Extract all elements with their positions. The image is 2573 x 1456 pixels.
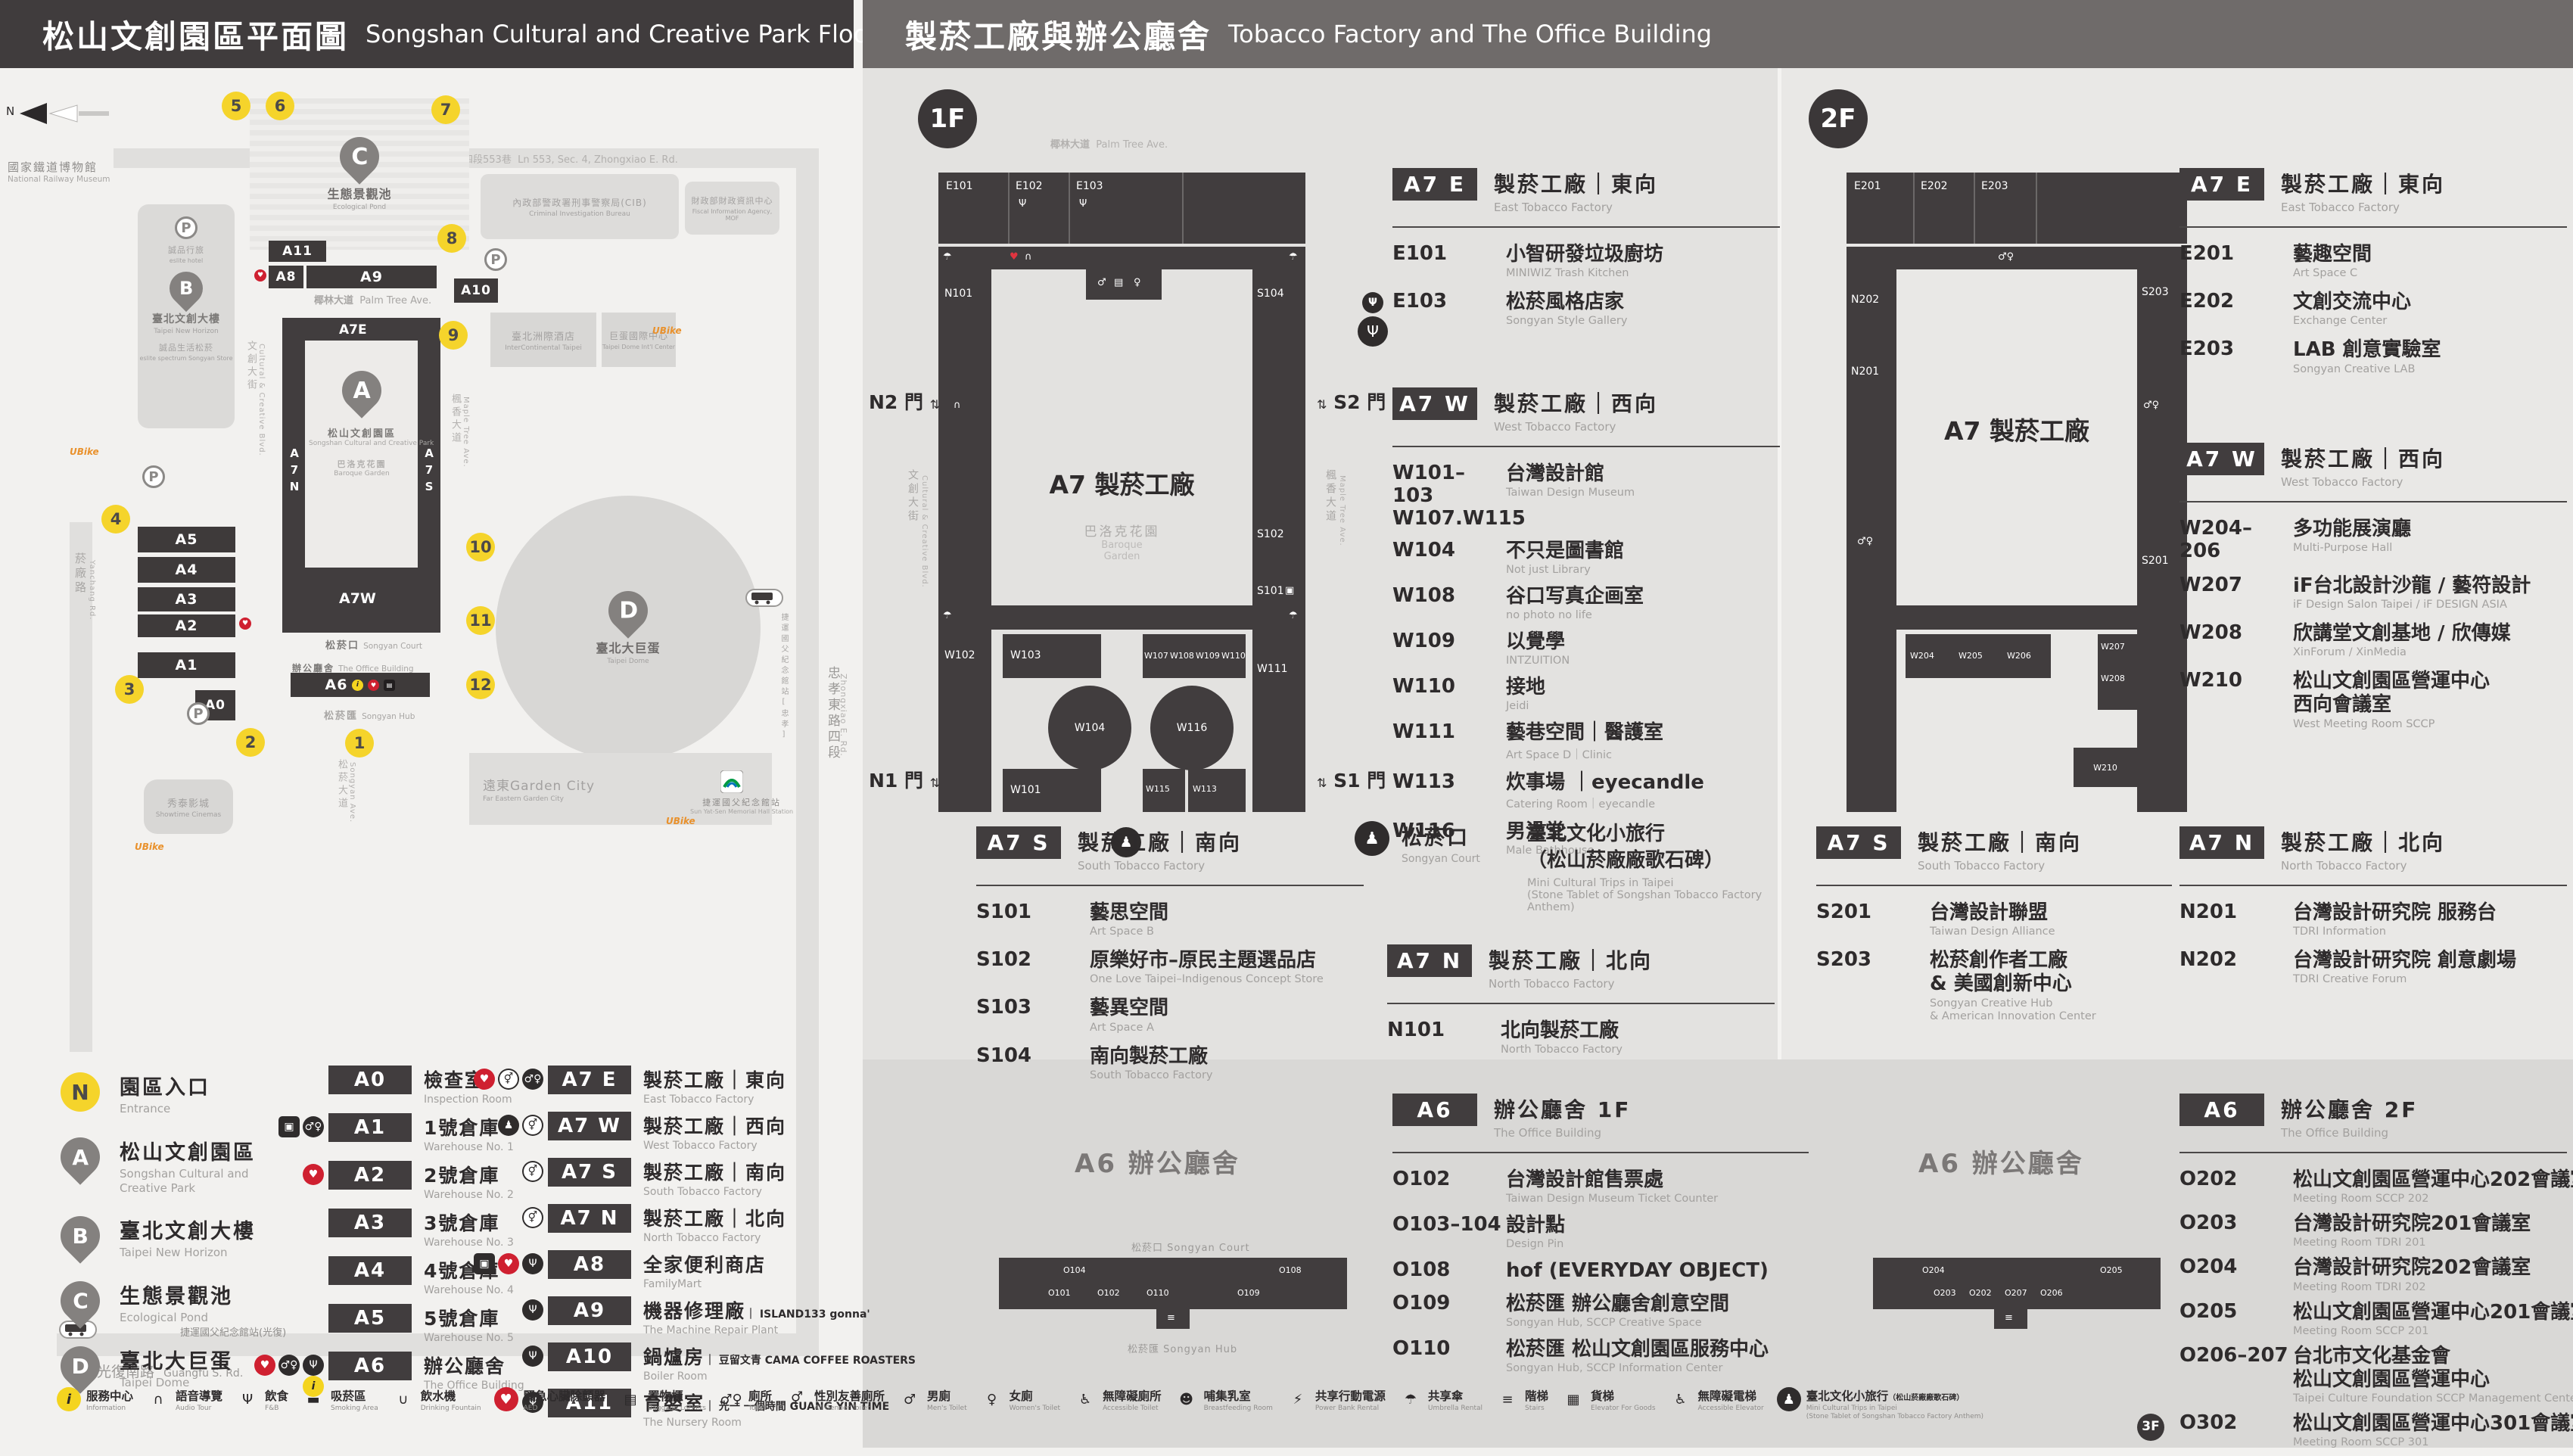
- section-a7n-1f: A7 N 製菸工廠｜北向 North Tobacco Factory N101 …: [1387, 944, 1775, 1067]
- room-list-item: W204–206 多功能展演廳Multi-Purpose Hall: [2179, 518, 2567, 563]
- section-title: 製菸工廠｜西向: [2281, 443, 2445, 473]
- room-list-item: E101 小智研發垃圾廚坊MINIWIZ Trash Kitchen: [1392, 243, 1780, 279]
- room-w110: W110: [1221, 651, 1246, 661]
- floor2-plan: E201 E202 E203 ♂♀ N202 N201 ♂♀ S203 S201…: [1847, 173, 2187, 812]
- stairs-icon: ≡: [2005, 1312, 2013, 1324]
- aed-icon: ♥: [498, 1253, 519, 1274]
- facility-legend-item: ∪ 飲水機 Drinking Fountain: [391, 1387, 481, 1413]
- fnb-icon: Ψ: [522, 1299, 543, 1321]
- building-legend-item: ♥⚥♂♀ A7 E 製菸工廠｜東向 East Tobacco Factory: [454, 1066, 848, 1106]
- room-o204: O204: [1922, 1265, 1945, 1275]
- room-list-item: W210 松山文創園區營運中心西向會議室West Meeting Room SC…: [2179, 670, 2567, 730]
- aed-icon: ♥: [303, 1164, 324, 1185]
- ubike-logo: UBike: [666, 816, 695, 826]
- a6-plan-title: A6 辦公廳舍: [1918, 1143, 2084, 1180]
- section-a7w-1f: A7 W 製菸工廠｜西向 West Tobacco Factory W101–1…: [1392, 387, 1780, 866]
- facility-legend-item: ♿ 無障礙廁所 Accessible Toilet: [1073, 1387, 1162, 1413]
- plan1-maple-label: 楓香大道: [1323, 469, 1338, 524]
- umbrella-rental-icon: ☂: [1289, 610, 1298, 621]
- room-list-item: O110 松菸匯 松山文創園區服務中心Songyan Hub, SCCP Inf…: [1392, 1338, 1809, 1374]
- smoking-area-icon: ▬: [301, 1387, 325, 1411]
- maple-ave-label: 楓香大道: [448, 394, 462, 445]
- road-left-label: 菸廠路: [73, 552, 89, 596]
- room-list-item: O102 台灣設計館售票處Taiwan Design Museum Ticket…: [1392, 1168, 1809, 1205]
- court-item-en: Mini Cultural Trips in Taipei: [1527, 877, 1778, 889]
- building-a4: A4: [138, 557, 235, 583]
- room-o202: O202: [1969, 1288, 1992, 1298]
- room-s102: S102: [1257, 528, 1284, 540]
- divider: [2179, 226, 2567, 228]
- room-list-item: S201 台灣設計聯盟Taiwan Design Alliance: [1816, 901, 2172, 938]
- room-e202: E202: [1921, 180, 1948, 192]
- section-title: 辦公廳舍 2F: [2281, 1094, 2418, 1124]
- umbrella-rental-icon: ☂: [1289, 251, 1298, 263]
- information-icon: i: [57, 1387, 81, 1411]
- room-o108: O108: [1279, 1265, 1302, 1275]
- entrance-12: 12: [466, 670, 495, 699]
- mini-trips-icon: ♟: [498, 1115, 519, 1136]
- room-list-item: ΨE103 松菸風格店家Songyan Style Gallery: [1392, 291, 1780, 327]
- section-a7e-2f: A7 E 製菸工廠｜東向 East Tobacco Factory E201 藝…: [2179, 168, 2567, 387]
- section-title: 辦公廳舍 1F: [1494, 1094, 1631, 1124]
- songyan-court-label: 松菸口 Songyan Court: [325, 637, 422, 652]
- floor1-plan: E101 E102 Ψ E103 Ψ ☂ ☂ ♥ ∩ ♂ ▤ ♀ N101 W1…: [938, 173, 1305, 812]
- room-w102: W102: [944, 649, 975, 661]
- room-list-item: O103–104 設計點Design Pin: [1392, 1214, 1809, 1250]
- section-page-title-en: Tobacco Factory and The Office Building: [1228, 20, 1712, 48]
- aed-icon: ♥: [254, 1355, 275, 1376]
- room-list-item: W109 以覺學INTZUITION: [1392, 630, 1780, 667]
- section-title: 製菸工廠｜西向: [1494, 387, 1658, 418]
- entrance-8: 8: [437, 224, 466, 253]
- badge-a7s: A7 S: [976, 826, 1061, 859]
- mini-trips-icon: ♟: [1777, 1387, 1801, 1411]
- factory-a7s-label: A7S: [422, 446, 436, 496]
- facility-legend-item: ⚥ 性別友善廁所 All Gender Toilet: [785, 1387, 885, 1413]
- pin-c: C: [331, 129, 387, 185]
- umbrella-rental-icon: ☂: [943, 251, 952, 263]
- room-list-item: W113 炊事場 ｜eyecandleCatering Room｜eyecand…: [1392, 771, 1780, 811]
- plan1-maple-label-en: Maple Tree Ave.: [1338, 475, 1346, 546]
- all-gender-toilet-icon: ⚥: [522, 1161, 543, 1182]
- parking-icon: P: [187, 702, 210, 725]
- section-a7w-2f: A7 W 製菸工廠｜西向 West Tobacco Factory W204–2…: [2179, 443, 2567, 742]
- audio-tour-icon: ∩: [146, 1387, 170, 1411]
- accessible-elevator-icon: ♿: [1669, 1387, 1693, 1411]
- information-icon: i: [352, 680, 363, 691]
- room-list-item: N201 台灣設計研究院 服務台TDRI Information: [2179, 901, 2567, 938]
- facility-legend-item: ♥ 緊急心臟除顫器 AED: [494, 1387, 606, 1413]
- plan1-south-corridor: [938, 605, 1305, 630]
- divider: [1008, 173, 1010, 244]
- building-legend-item: Ψ A10 鍋爐房｜ 豆留文青 CAMA COFFEE ROASTERS Boi…: [454, 1342, 848, 1383]
- room-n202: N202: [1851, 294, 1879, 306]
- building-legend-item: Ψ A9 機器修理廠｜ ISLAND133 gonna' The Machine…: [454, 1296, 848, 1336]
- section-a6-2f: A6 辦公廳舍 2F The Office Building O202 松山文創…: [2179, 1094, 2567, 1456]
- building-a5: A5: [138, 527, 235, 552]
- aed-icon: ♥: [239, 618, 251, 630]
- building-a11: A11: [269, 241, 326, 262]
- badge-a6: A6: [2179, 1094, 2264, 1126]
- plan1-left-wing: [938, 269, 991, 812]
- factory-a7n-label: A7N: [288, 446, 301, 496]
- badge-a7s: A7 S: [1816, 826, 1901, 859]
- room-list-item: S102 原樂好市–原民主題選品店One Love Taipei–Indigen…: [976, 949, 1364, 985]
- pin-b: B: [163, 265, 210, 312]
- elevator-icon: ▣: [474, 1253, 495, 1274]
- metro-logo: [720, 770, 743, 793]
- room-list-item: W110 接地Jeidi: [1392, 676, 1780, 712]
- maple-ave-label-en: Maple Tree Ave.: [462, 397, 470, 468]
- page-title-en: Songshan Cultural and Creative Park Floo…: [366, 20, 938, 48]
- plan2-top-corridor: [1847, 247, 2187, 269]
- room-list-item: E201 藝趣空間Art Space C: [2179, 243, 2567, 279]
- elevator-for-goods-icon: ▦: [1561, 1387, 1585, 1411]
- pin-icon: N: [61, 1072, 100, 1112]
- section-title-en: West Tobacco Factory: [1494, 420, 1658, 434]
- section-title: 製菸工廠｜南向: [1918, 826, 2082, 857]
- room-w109: W109: [1196, 651, 1220, 661]
- ubike-logo: UBike: [135, 842, 164, 852]
- room-w108: W108: [1170, 651, 1194, 661]
- toilet-icon: ♂♀: [719, 1387, 743, 1411]
- stairs-icon: ≡: [1495, 1387, 1520, 1411]
- aed-icon: ♥: [1010, 251, 1019, 263]
- cc-blvd-label: 文創大街: [244, 341, 258, 392]
- facility-legend-item: ▤ 置物櫃 Baggage Lockers: [618, 1387, 706, 1413]
- aed-icon: ♥: [474, 1069, 495, 1090]
- road-left-label-en: Yanchang Rd.: [88, 560, 96, 621]
- plan1-top-corridor: [938, 247, 1305, 269]
- room-w103: W103: [1010, 649, 1041, 661]
- baggage-lockers-icon: ▤: [618, 1387, 642, 1411]
- a6-court-label: 松菸口 Songyan Court: [1131, 1240, 1250, 1254]
- divider: [1392, 226, 1780, 228]
- facility-legend-item: ▬ 吸菸區 Smoking Area: [301, 1387, 378, 1413]
- room-n201: N201: [1851, 366, 1879, 378]
- plan1-palm-label: 椰林大道 Palm Tree Ave.: [1050, 136, 1168, 151]
- section-title-en: South Tobacco Factory: [1918, 859, 2082, 873]
- building-a1: A1: [138, 652, 235, 678]
- aed-icon: ♥: [368, 680, 379, 691]
- room-e103: E103: [1076, 180, 1103, 192]
- room-o110: O110: [1146, 1288, 1169, 1298]
- badge-a7w: A7 W: [1392, 387, 1477, 420]
- songyan-ave-label-en: Songyan Ave.: [348, 762, 356, 823]
- divider: [2179, 1152, 2567, 1153]
- room-w107: W107: [1144, 651, 1168, 661]
- a6-hub-label: 松菸匯 Songyan Hub: [1128, 1341, 1237, 1355]
- elevator-icon: ▣: [278, 1116, 300, 1137]
- room-list-item: W208 欣講堂文創基地 / 欣傳媒XinForum / XinMedia: [2179, 622, 2567, 658]
- all-gender-toilet-icon: ⚥: [498, 1069, 519, 1090]
- mrt-station-label: 捷運國父紀念館站 Sun Yat-Sen Memorial Hall Stati…: [690, 796, 793, 815]
- section-title-en: The Office Building: [2281, 1126, 2418, 1140]
- divider: [1069, 173, 1070, 244]
- section-title: 製菸工廠｜東向: [2281, 168, 2445, 198]
- gate-n1: N1 門 ⇅: [869, 766, 940, 793]
- divider: [1392, 1152, 1809, 1153]
- room-s104: S104: [1257, 288, 1284, 300]
- fia-building: 財政部財政資訊中心 Fiscal Information Agency, MOF: [685, 182, 779, 235]
- facility-legend-strip: i 服務中心 Information ∩ 語音導覽 Audio Tour Ψ 飲…: [57, 1387, 1983, 1420]
- room-e201: E201: [1854, 180, 1881, 192]
- badge-a7e: A7 E: [1392, 168, 1477, 201]
- building-a8: A8: [269, 266, 303, 288]
- room-list-item: S104 南向製菸工廠South Tobacco Factory: [976, 1045, 1364, 1081]
- section-a7n-2f: A7 N 製菸工廠｜北向 North Tobacco Factory N201 …: [2179, 826, 2567, 997]
- floor1-badge: 1F: [918, 89, 977, 148]
- facility-legend-item: ☂ 共享傘 Umbrella Rental: [1399, 1387, 1483, 1413]
- section-title: 製菸工廠｜東向: [1494, 168, 1658, 198]
- all-gender-toilet-icon: ⚥: [785, 1387, 809, 1411]
- entrance-6: 6: [266, 92, 294, 120]
- room-list-item: O204 台灣設計研究院202會議室Meeting Room TDRI 202: [2179, 1256, 2567, 1293]
- dome-intl-center: 巨蛋國際中心 Taipei Dome Int'l Center: [602, 313, 676, 367]
- toilet-icon: ♂♀: [303, 1116, 324, 1137]
- room-w116: W116: [1150, 686, 1234, 770]
- fnb-icon: Ψ: [1358, 316, 1388, 347]
- a6-plan-2f: A6 辦公廳舍 O204 O205 O203 O202 O207 O206 ≡: [1854, 1097, 2179, 1385]
- court-item-zh: 臺北文化小旅行: [1527, 821, 1778, 848]
- building-legend-item: ▣♥Ψ A8 全家便利商店 FamilyMart: [454, 1250, 848, 1290]
- page-title: 松山文創園區平面圖: [42, 11, 349, 58]
- section-a7s-1f: A7 S 製菸工廠｜南向 South Tobacco Factory S101 …: [976, 826, 1364, 1093]
- room-list-item: O108 hof (EVERYDAY OBJECT): [1392, 1259, 1809, 1283]
- songyan-ave-label: 松菸大道: [334, 759, 349, 810]
- section-title-en: West Tobacco Factory: [2281, 475, 2445, 489]
- umbrella-rental-icon: ☂: [943, 610, 952, 621]
- room-w208: W208: [2101, 674, 2125, 683]
- badge-a7n: A7 N: [2179, 826, 2264, 859]
- room-w101: W101: [1010, 784, 1041, 796]
- room-list-item: W104 不只是圖書館Not just Library: [1392, 540, 1780, 576]
- room-list-item: O203 台灣設計研究院201會議室Meeting Room TDRI 201: [2179, 1212, 2567, 1249]
- bus-stop-icon: [745, 589, 783, 607]
- womens-toilet-icon: ♀: [980, 1387, 1004, 1411]
- north-label: N: [6, 104, 14, 118]
- all-gender-toilet-icon: ⚥: [522, 1115, 543, 1136]
- stairs-icon: ≡: [1167, 1312, 1175, 1324]
- divider: [2036, 173, 2037, 244]
- entrance-3: 3: [115, 675, 144, 704]
- divider: [1182, 173, 1184, 244]
- gate-s1: ⇅ S1 門: [1317, 766, 1386, 793]
- floor2-badge: 2F: [1809, 89, 1868, 148]
- facility-legend-item: ♂ 男廁 Men's Toilet: [898, 1387, 967, 1413]
- room-o207: O207: [2005, 1288, 2027, 1298]
- room-w113: W113: [1193, 784, 1217, 794]
- umbrella-rental-icon: ☂: [1399, 1387, 1423, 1411]
- mens-toilet-icon: ♂: [898, 1387, 922, 1411]
- badge-a7n: A7 N: [1387, 944, 1472, 977]
- facility-legend-item: ♂♀ 廁所 Toilet: [719, 1387, 772, 1413]
- railway-museum-label: 國家鐵道博物館 National Railway Museum: [8, 159, 110, 184]
- room-w115: W115: [1146, 784, 1170, 794]
- plan1-right-wing: [1252, 269, 1305, 812]
- all-gender-toilet-icon: ⚥: [522, 1207, 543, 1228]
- palm-tree-ave-label: 椰林大道 Palm Tree Ave.: [314, 292, 431, 306]
- bus-stop-zhongxiao-label: 捷運國父紀念館站[忠孝]: [778, 613, 789, 742]
- facility-legend-item: ☻ 哺集乳室 Breastfeeding Room: [1174, 1387, 1273, 1413]
- section-page-title: 製菸工廠與辦公廳舍: [905, 11, 1212, 58]
- cib-building: 內政部警政署刑事警察局(CIB) Criminal Investigation …: [481, 174, 679, 239]
- ubike-logo: UBike: [70, 446, 99, 457]
- pin-icon: B: [52, 1208, 108, 1264]
- court-title: 松菸口: [1402, 821, 1515, 851]
- facility-legend-item: ∩ 語音導覽 Audio Tour: [146, 1387, 222, 1413]
- audio-tour-icon: ∩: [1025, 251, 1032, 263]
- baggage-lockers-icon: ▤: [384, 680, 395, 691]
- room-w204: W204: [1910, 651, 1934, 661]
- pin-d: D: [600, 583, 656, 639]
- building-a10: A10: [454, 278, 498, 303]
- factory-a7w-label: A7W: [339, 590, 376, 607]
- room-o102: O102: [1097, 1288, 1120, 1298]
- room-list-item: O202 松山文創園區營運中心202會議室Meeting Room SCCP 2…: [2179, 1168, 2567, 1205]
- section-a6-1f: A6 辦公廳舍 1F The Office Building O102 台灣設計…: [1392, 1094, 1809, 1383]
- room-s101: S101: [1257, 585, 1284, 597]
- section-title-en: East Tobacco Factory: [2281, 201, 2445, 214]
- entrance-10: 10: [466, 533, 495, 562]
- plan2-center: A7 製菸工廠: [1896, 411, 2137, 447]
- facility-legend-item: ♟ 臺北文化小旅行（松山菸廠廠歌石碑） Mini Cultural Trips …: [1777, 1387, 1983, 1420]
- north-arrow: [20, 103, 110, 124]
- legend-buildings-b: ♥⚥♂♀ A7 E 製菸工廠｜東向 East Tobacco Factory ♟…: [454, 1066, 848, 1435]
- a6-plan-title: A6 辦公廳舍: [1075, 1143, 1240, 1180]
- facility-legend-item: ♿ 無障礙電梯 Accessible Elevator: [1669, 1387, 1764, 1413]
- plan1-ccblvd-label-en: Cultural & Creative Blvd.: [920, 475, 929, 588]
- section-title: 製菸工廠｜北向: [1489, 944, 1653, 975]
- facility-legend-item: ≡ 階梯 Stairs: [1495, 1387, 1548, 1413]
- room-e101: E101: [946, 180, 973, 192]
- room-s203: S203: [2142, 286, 2169, 298]
- accessible-toilet-icon: ♿: [1073, 1387, 1097, 1411]
- aed-icon: ♥: [494, 1387, 518, 1411]
- gate-n2: N2 門 ⇅: [869, 387, 940, 415]
- room-o101: O101: [1048, 1288, 1071, 1298]
- building-legend-item: ♟⚥ A7 W 製菸工廠｜西向 West Tobacco Factory: [454, 1112, 848, 1152]
- plan1-ccblvd-label: 文創大街: [905, 469, 920, 524]
- room-list-item: E203 LAB 創意實驗室Songyan Creative LAB: [2179, 338, 2567, 375]
- section-a7e-1f: A7 E 製菸工廠｜東向 East Tobacco Factory E101 小…: [1392, 168, 1780, 338]
- fnb-icon: Ψ: [522, 1346, 543, 1367]
- toilet-icon: ♂♀: [1998, 251, 2014, 263]
- entrance-1: 1: [345, 729, 374, 758]
- audio-tour-icon: ∩: [954, 400, 961, 411]
- court-item-en2: (Stone Tablet of Songshan Tobacco Factor…: [1527, 889, 1778, 913]
- divider: [2179, 501, 2567, 502]
- room-e102: E102: [1016, 180, 1043, 192]
- entrance-2: 2: [236, 728, 265, 757]
- room-list-item: O205 松山文創園區營運中心201會議室Meeting Room SCCP 2…: [2179, 1301, 2567, 1337]
- room-list-item: S203 松菸創作者工廠& 美國創新中心Songyan Creative Hub…: [1816, 949, 2172, 1022]
- room-list-item: S103 藝異空間Art Space A: [976, 997, 1364, 1033]
- songyan-court-icon: ♟: [1355, 821, 1389, 856]
- park-name-label: 松山文創園區 Songshan Cultural and Creative Pa…: [309, 425, 415, 478]
- parking-icon: P: [484, 248, 507, 271]
- breastfeeding-room-icon: ☻: [1174, 1387, 1199, 1411]
- gate-s2: ⇅ S2 門: [1317, 387, 1386, 415]
- room-n101: N101: [944, 288, 972, 300]
- room-s201: S201: [2142, 555, 2169, 567]
- room-list-item: W101–103W107.W115 台灣設計館Taiwan Design Mus…: [1392, 462, 1780, 530]
- room-o206: O206: [2040, 1288, 2063, 1298]
- divider: [1816, 885, 2172, 886]
- building-a9: A9: [306, 266, 437, 288]
- pin-icon: D: [52, 1338, 108, 1394]
- plan2-south-corridor: [1847, 605, 2187, 630]
- taipei-dome: D 臺北大巨蛋 Taipei Dome: [496, 496, 761, 761]
- room-w111: W111: [1257, 663, 1288, 675]
- cc-blvd-label-en: Cultural & Creative Blvd.: [257, 344, 266, 456]
- room-list-item: W108 谷口写真企画室no photo no life: [1392, 585, 1780, 621]
- room-w206: W206: [2007, 651, 2031, 661]
- songyan-court-block: ♟ 松菸口 Songyan Court 臺北文化小旅行 （松山菸廠廠歌石碑） M…: [1355, 821, 1778, 913]
- room-w210: W210: [2093, 763, 2117, 773]
- fnb-icon: Ψ: [522, 1253, 543, 1274]
- section-title-en: South Tobacco Factory: [1078, 859, 1242, 873]
- toilet-icon: ♀: [1134, 277, 1141, 288]
- toilet-icon: ♂♀: [278, 1355, 300, 1376]
- room-list-item: S101 藝思空間Art Space B: [976, 901, 1364, 938]
- divider: [1387, 1003, 1775, 1004]
- room-w205: W205: [1959, 651, 1983, 661]
- parking-icon: P: [175, 216, 198, 239]
- fnb-icon: Ψ: [1362, 292, 1383, 313]
- aed-icon: ♥: [254, 269, 266, 282]
- fnb-icon: Ψ: [1079, 198, 1087, 210]
- section-title-en: North Tobacco Factory: [2281, 859, 2445, 873]
- divider: [1392, 446, 1780, 447]
- section-title: 製菸工廠｜南向: [1078, 826, 1242, 857]
- factory-a7e-label: A7E: [339, 322, 367, 338]
- divider: [976, 885, 1364, 886]
- toilet-icon: ♂: [1097, 277, 1106, 288]
- room-list-item: O109 松菸匯 辦公廳舍創意空間Songyan Hub, SCCP Creat…: [1392, 1293, 1809, 1329]
- baggage-lockers-icon: ▤: [1114, 277, 1123, 288]
- badge-a7w: A7 W: [2179, 443, 2264, 475]
- building-a3: A3: [138, 587, 235, 611]
- pin-icon: C: [52, 1273, 108, 1329]
- entrance-11: 11: [466, 606, 495, 635]
- entrance-9: 9: [439, 321, 468, 350]
- building-legend-item: ⚥ A7 S 製菸工廠｜南向 South Tobacco Factory: [454, 1158, 848, 1198]
- section-title-en: North Tobacco Factory: [1489, 977, 1653, 991]
- section-title-en: The Office Building: [1494, 1126, 1631, 1140]
- plan2-top-wing: [1847, 173, 2187, 244]
- room-list-item: 3FO302 松山文創園區營運中心301會議室Meeting Room SCCP…: [2179, 1412, 2567, 1448]
- room-w207: W207: [2101, 642, 2125, 652]
- a6-plan-1f: A6 辦公廳舍 松菸口 Songyan Court O104 O108 O101…: [976, 1097, 1370, 1385]
- plan1-center: A7 製菸工廠 巴洛克花園 Baroque Garden: [991, 465, 1252, 562]
- header-left: 松山文創園區平面圖 Songshan Cultural and Creative…: [0, 0, 854, 68]
- building-a6: A6 i ♥ ▤: [291, 673, 430, 697]
- room-w104: W104: [1048, 686, 1131, 770]
- room-e203: E203: [1981, 180, 2008, 192]
- facility-legend-item: i 服務中心 Information: [57, 1387, 133, 1413]
- building-legend-item: ⚥ A7 N 製菸工廠｜北向 North Tobacco Factory: [454, 1204, 848, 1244]
- room-block-w210: W210: [2074, 748, 2137, 787]
- header-right: 製菸工廠與辦公廳舍 Tobacco Factory and The Office…: [863, 0, 2573, 68]
- songyan-hub-label: 松菸匯 Songyan Hub: [324, 708, 415, 722]
- room-o205: O205: [2100, 1265, 2123, 1275]
- entrance-4: 4: [101, 505, 130, 534]
- room-list-item: W207 iF台北設計沙龍 / 藝符設計iF Design Salon Taip…: [2179, 574, 2567, 611]
- section-title: 製菸工廠｜北向: [2281, 826, 2445, 857]
- facility-legend-item: ♀ 女廁 Women's Toilet: [980, 1387, 1060, 1413]
- ubike-logo: UBike: [652, 325, 682, 336]
